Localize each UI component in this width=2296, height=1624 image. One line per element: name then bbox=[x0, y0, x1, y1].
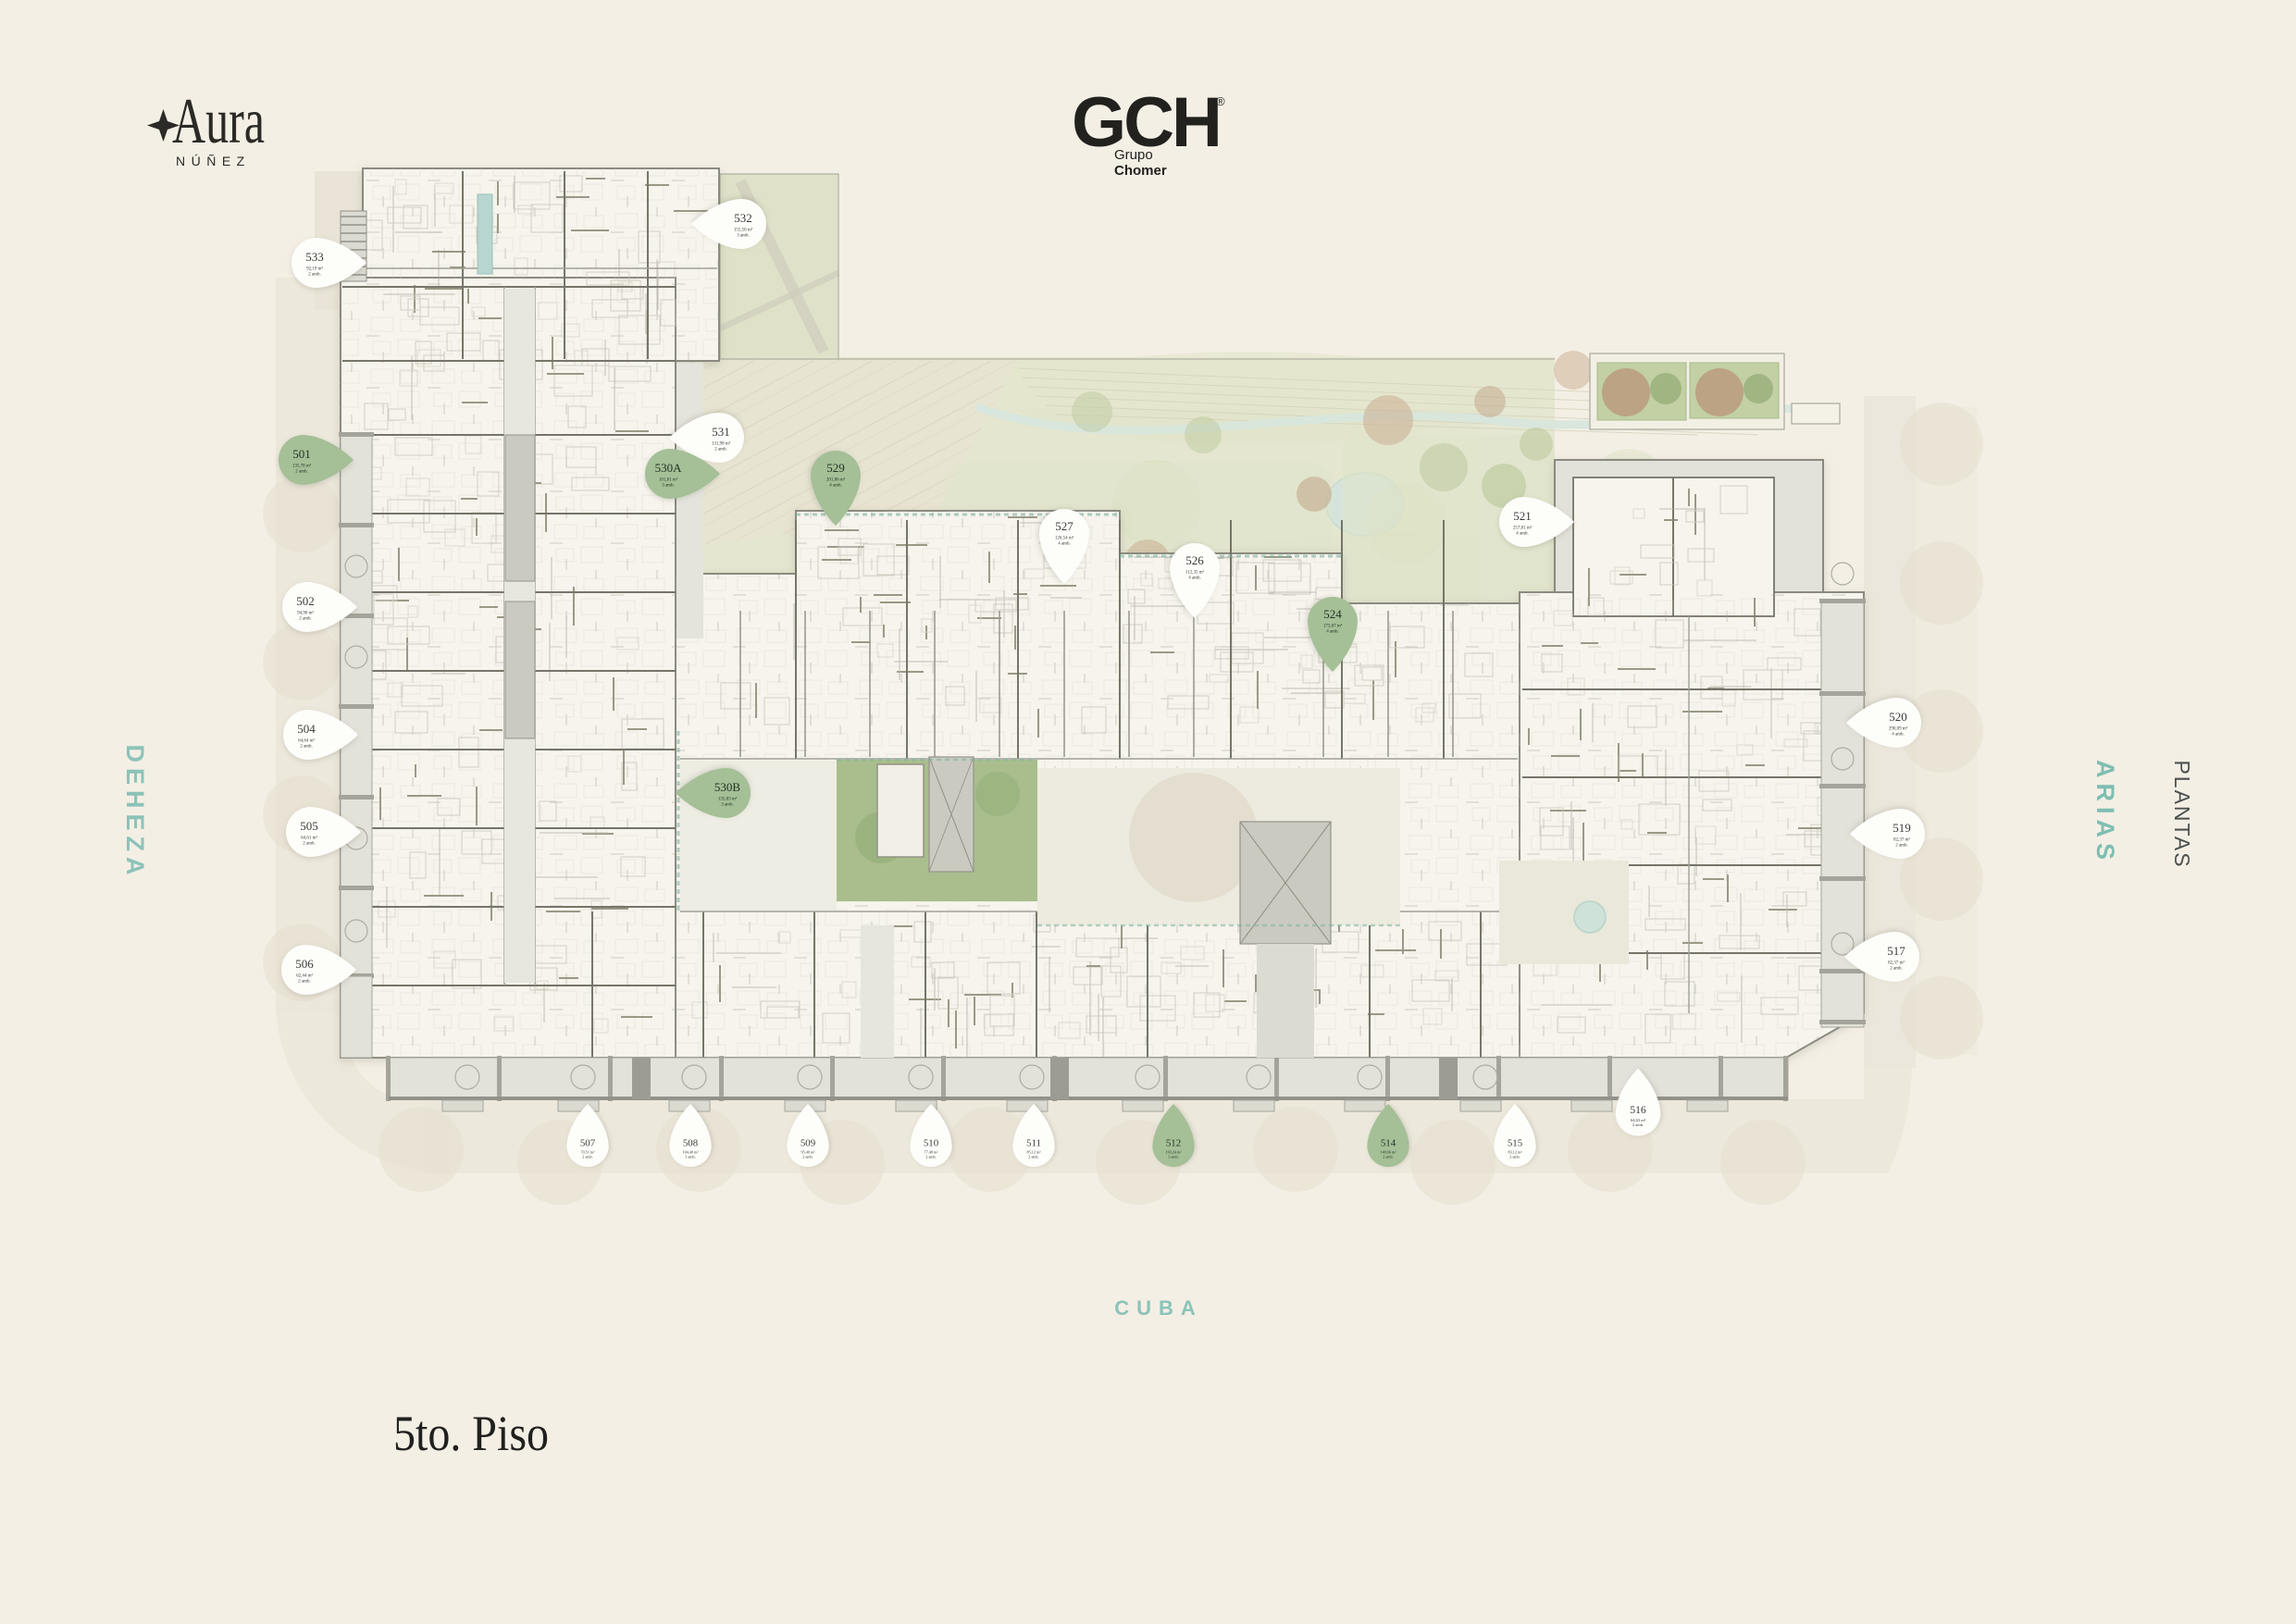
svg-text:524: 524 bbox=[1323, 607, 1342, 621]
svg-text:135,78 m²: 135,78 m² bbox=[292, 464, 312, 469]
svg-text:2 amb.: 2 amb. bbox=[295, 470, 308, 475]
svg-text:520: 520 bbox=[1889, 710, 1907, 724]
svg-text:515: 515 bbox=[1508, 1137, 1523, 1148]
svg-text:506: 506 bbox=[295, 957, 314, 971]
svg-text:530B: 530B bbox=[714, 780, 741, 794]
svg-text:101,81 m²: 101,81 m² bbox=[659, 477, 678, 483]
svg-text:2 amb.: 2 amb. bbox=[298, 980, 311, 985]
svg-text:2 amb.: 2 amb. bbox=[582, 1154, 592, 1159]
svg-text:ARIAS: ARIAS bbox=[2091, 760, 2119, 865]
svg-text:512: 512 bbox=[1166, 1137, 1181, 1148]
svg-text:3 amb.: 3 amb. bbox=[737, 234, 750, 239]
svg-text:2 amb.: 2 amb. bbox=[1383, 1154, 1393, 1159]
svg-text:135,83 m²: 135,83 m² bbox=[718, 797, 738, 802]
svg-text:4 amb.: 4 amb. bbox=[1058, 542, 1071, 547]
svg-text:502: 502 bbox=[296, 594, 315, 608]
svg-text:514: 514 bbox=[1381, 1137, 1396, 1148]
svg-text:290,09 m²: 290,09 m² bbox=[1889, 726, 1908, 732]
svg-text:CUBA: CUBA bbox=[1114, 1296, 1203, 1320]
svg-text:64,61 m²: 64,61 m² bbox=[301, 836, 317, 841]
svg-text:PLANTAS: PLANTAS bbox=[2170, 760, 2194, 868]
svg-text:521: 521 bbox=[1513, 509, 1532, 523]
svg-text:4 amb.: 4 amb. bbox=[1516, 532, 1529, 537]
svg-text:526: 526 bbox=[1185, 553, 1204, 567]
svg-text:3 amb.: 3 amb. bbox=[1168, 1154, 1178, 1159]
svg-text:62,44 m²: 62,44 m² bbox=[296, 973, 313, 979]
svg-text:2 amb.: 2 amb. bbox=[1895, 844, 1908, 849]
svg-text:Aura: Aura bbox=[172, 86, 265, 157]
svg-text:511: 511 bbox=[1026, 1137, 1041, 1148]
svg-text:®: ® bbox=[1216, 94, 1225, 108]
svg-text:2 amb.: 2 amb. bbox=[1509, 1154, 1520, 1159]
svg-text:519: 519 bbox=[1893, 821, 1911, 835]
svg-text:4 amb.: 4 amb. bbox=[1892, 733, 1905, 738]
svg-text:530A: 530A bbox=[655, 461, 683, 475]
svg-text:529: 529 bbox=[826, 461, 845, 475]
svg-text:2 amb.: 2 amb. bbox=[308, 273, 321, 278]
svg-text:531: 531 bbox=[712, 425, 730, 439]
svg-text:82,37 m²: 82,37 m² bbox=[1888, 961, 1905, 966]
svg-text:2 amb.: 2 amb. bbox=[1028, 1154, 1038, 1159]
svg-text:82,37 m²: 82,37 m² bbox=[1893, 837, 1910, 843]
svg-text:509: 509 bbox=[800, 1137, 815, 1148]
svg-text:4 amb.: 4 amb. bbox=[1188, 576, 1201, 581]
svg-text:3 amb.: 3 amb. bbox=[685, 1154, 695, 1159]
svg-text:532: 532 bbox=[734, 211, 752, 225]
svg-text:64,64 m²: 64,64 m² bbox=[298, 738, 315, 744]
svg-text:112,35 m²: 112,35 m² bbox=[1185, 570, 1205, 576]
svg-text:Grupo: Grupo bbox=[1114, 147, 1153, 163]
svg-text:517: 517 bbox=[1887, 944, 1905, 958]
svg-text:516: 516 bbox=[1630, 1104, 1646, 1116]
svg-text:4 amb.: 4 amb. bbox=[1326, 630, 1339, 635]
svg-text:155,50 m²: 155,50 m² bbox=[734, 228, 753, 233]
svg-text:201,86 m²: 201,86 m² bbox=[826, 477, 846, 483]
svg-text:527: 527 bbox=[1055, 519, 1074, 533]
svg-text:Chomer: Chomer bbox=[1114, 163, 1167, 179]
svg-text:DEHEZA: DEHEZA bbox=[121, 744, 149, 880]
svg-text:2 amb.: 2 amb. bbox=[714, 448, 727, 452]
svg-text:504: 504 bbox=[297, 722, 316, 736]
svg-text:2 amb.: 2 amb. bbox=[802, 1154, 813, 1159]
svg-text:508: 508 bbox=[683, 1137, 699, 1148]
svg-text:173,67 m²: 173,67 m² bbox=[1323, 624, 1343, 629]
svg-text:131,98 m²: 131,98 m² bbox=[712, 441, 731, 447]
svg-text:3 amb.: 3 amb. bbox=[721, 803, 734, 808]
svg-text:NÚÑEZ: NÚÑEZ bbox=[176, 154, 251, 168]
svg-text:501: 501 bbox=[292, 447, 311, 461]
svg-text:510: 510 bbox=[924, 1137, 939, 1148]
svg-text:94,90 m²: 94,90 m² bbox=[297, 611, 314, 616]
svg-text:2 amb.: 2 amb. bbox=[299, 617, 312, 622]
svg-text:126,54 m²: 126,54 m² bbox=[1055, 536, 1074, 541]
svg-text:507: 507 bbox=[580, 1137, 596, 1148]
svg-text:92,19 m²: 92,19 m² bbox=[306, 267, 323, 272]
svg-text:5to. Piso: 5to. Piso bbox=[393, 1406, 549, 1461]
svg-text:533: 533 bbox=[305, 250, 324, 264]
svg-text:2 amb.: 2 amb. bbox=[1632, 1122, 1644, 1127]
svg-text:2 amb.: 2 amb. bbox=[925, 1154, 936, 1159]
svg-text:505: 505 bbox=[300, 819, 318, 833]
svg-text:4 amb.: 4 amb. bbox=[829, 484, 842, 489]
svg-text:2 amb.: 2 amb. bbox=[300, 745, 313, 750]
svg-text:257,81 m²: 257,81 m² bbox=[1513, 526, 1533, 531]
svg-text:2 amb.: 2 amb. bbox=[1890, 967, 1903, 972]
svg-text:2 amb.: 2 amb. bbox=[303, 842, 316, 847]
svg-text:3 amb.: 3 amb. bbox=[662, 484, 675, 489]
